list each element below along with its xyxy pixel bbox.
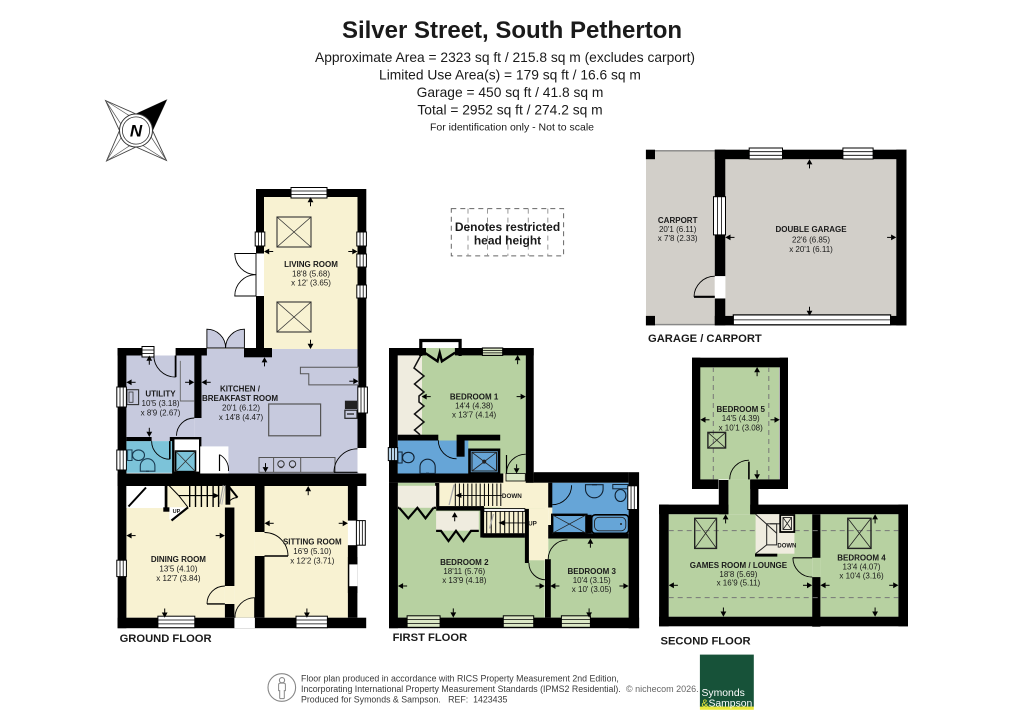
svg-text:BEDROOM 5: BEDROOM 5 — [716, 405, 765, 414]
svg-text:x 10' (3.05): x 10' (3.05) — [572, 585, 612, 594]
svg-text:Total = 2952 sq ft / 274.2 sq: Total = 2952 sq ft / 274.2 sq m — [417, 103, 602, 118]
svg-text:x 13'9 (4.18): x 13'9 (4.18) — [442, 576, 487, 585]
svg-text:13'5 (4.10): 13'5 (4.10) — [159, 565, 197, 574]
svg-text:Floor plan produced in accorda: Floor plan produced in accordance with R… — [301, 674, 619, 684]
svg-text:10'5 (3.18): 10'5 (3.18) — [142, 399, 180, 408]
svg-text:BEDROOM 2: BEDROOM 2 — [440, 558, 489, 567]
svg-text:FIRST FLOOR: FIRST FLOOR — [393, 632, 468, 644]
svg-text:&Sampson: &Sampson — [702, 699, 753, 710]
svg-text:N: N — [130, 122, 143, 141]
svg-text:x 20'1 (6.11): x 20'1 (6.11) — [789, 245, 833, 254]
svg-text:Garage = 450 sq ft / 41.8 sq m: Garage = 450 sq ft / 41.8 sq m — [417, 85, 604, 100]
svg-text:x 12'2 (3.71): x 12'2 (3.71) — [290, 557, 335, 566]
svg-text:x 7'8 (2.33): x 7'8 (2.33) — [658, 234, 698, 243]
svg-text:BEDROOM 1: BEDROOM 1 — [450, 393, 499, 402]
svg-text:LIVING ROOM: LIVING ROOM — [284, 260, 338, 269]
svg-text:20'1 (6.12): 20'1 (6.12) — [222, 404, 260, 413]
svg-text:x 12' (3.65): x 12' (3.65) — [291, 279, 331, 288]
svg-text:UP: UP — [173, 509, 181, 515]
svg-text:x 13'7 (4.14): x 13'7 (4.14) — [452, 411, 497, 420]
svg-text:CARPORT: CARPORT — [658, 216, 698, 225]
svg-text:DOWN: DOWN — [502, 493, 522, 500]
svg-text:Denotes restricted: Denotes restricted — [455, 220, 560, 234]
svg-text:head height: head height — [474, 234, 541, 248]
svg-text:For identification only - Not: For identification only - Not to scale — [430, 122, 594, 134]
svg-text:© nichecom 2026.: © nichecom 2026. — [626, 684, 699, 694]
svg-text:Limited Use Area(s) = 179 sq f: Limited Use Area(s) = 179 sq ft / 16.6 s… — [379, 68, 641, 83]
svg-text:BEDROOM 3: BEDROOM 3 — [567, 567, 616, 576]
svg-text:Approximate Area = 2323 sq ft: Approximate Area = 2323 sq ft / 215.8 sq… — [315, 50, 695, 65]
svg-text:22'6 (6.85): 22'6 (6.85) — [792, 236, 830, 245]
svg-text:x 12'7 (3.84): x 12'7 (3.84) — [156, 574, 201, 583]
svg-text:10'4 (3.15): 10'4 (3.15) — [573, 576, 611, 585]
svg-text:GARAGE / CARPORT: GARAGE / CARPORT — [648, 333, 762, 345]
svg-text:Incorporating International Pr: Incorporating International Property Mea… — [301, 684, 621, 694]
svg-text:DOWN: DOWN — [777, 543, 796, 549]
svg-text:x 10'1 (3.08): x 10'1 (3.08) — [719, 424, 764, 433]
svg-text:Silver Street, South Petherton: Silver Street, South Petherton — [342, 17, 682, 44]
svg-text:Symonds: Symonds — [702, 688, 745, 699]
svg-text:14'5 (4.39): 14'5 (4.39) — [722, 414, 760, 423]
svg-text:DINING ROOM: DINING ROOM — [151, 555, 206, 564]
svg-text:13'4 (4.07): 13'4 (4.07) — [843, 562, 881, 571]
svg-text:18'11 (5.76): 18'11 (5.76) — [443, 567, 485, 576]
svg-text:x 8'9 (2.67): x 8'9 (2.67) — [141, 409, 181, 418]
svg-text:UP: UP — [528, 520, 537, 527]
svg-text:x 14'8 (4.47): x 14'8 (4.47) — [219, 413, 264, 422]
svg-text:20'1 (6.11): 20'1 (6.11) — [659, 225, 697, 234]
svg-text:14'4 (4.38): 14'4 (4.38) — [455, 402, 493, 411]
svg-text:BEDROOM 4: BEDROOM 4 — [837, 553, 886, 562]
svg-text:x 16'9 (5.11): x 16'9 (5.11) — [717, 579, 761, 588]
svg-text:Produced for Symonds & Sampson: Produced for Symonds & Sampson. REF: 142… — [301, 695, 507, 705]
svg-text:SITTING ROOM: SITTING ROOM — [283, 538, 342, 547]
svg-text:GAMES ROOM / LOUNGE: GAMES ROOM / LOUNGE — [690, 561, 788, 570]
svg-text:DOUBLE GARAGE: DOUBLE GARAGE — [775, 225, 847, 234]
svg-text:UTILITY: UTILITY — [145, 390, 176, 399]
svg-text:GROUND FLOOR: GROUND FLOOR — [120, 633, 212, 645]
svg-text:18'8 (5.68): 18'8 (5.68) — [292, 270, 330, 279]
svg-text:x 10'4 (3.16): x 10'4 (3.16) — [839, 571, 884, 580]
svg-text:BREAKFAST ROOM: BREAKFAST ROOM — [202, 394, 278, 403]
svg-text:KITCHEN /: KITCHEN / — [220, 385, 261, 394]
svg-text:16'9 (5.10): 16'9 (5.10) — [293, 547, 331, 556]
svg-text:SECOND FLOOR: SECOND FLOOR — [661, 636, 751, 648]
